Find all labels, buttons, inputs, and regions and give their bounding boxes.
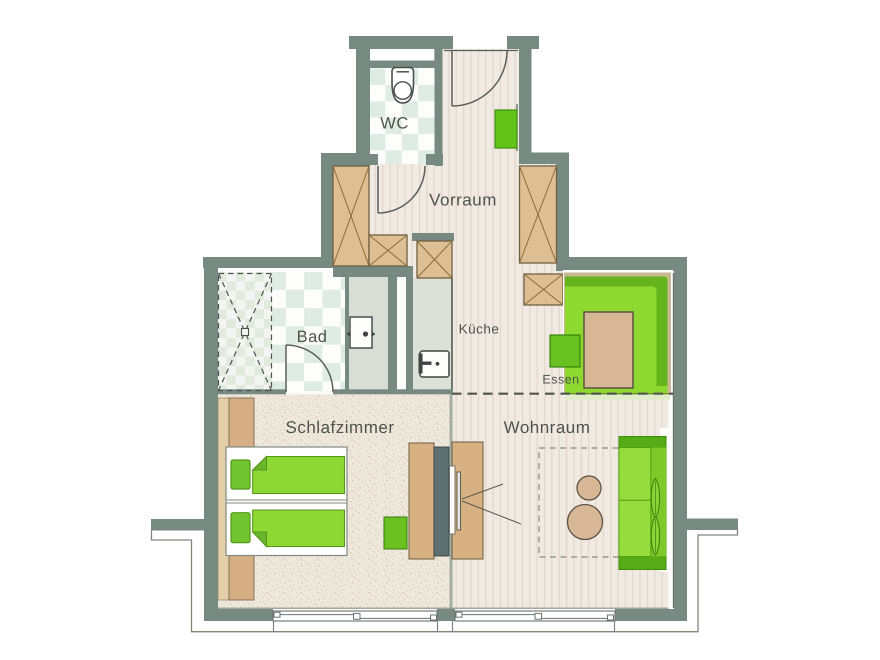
svg-text:Bad: Bad bbox=[297, 328, 328, 346]
svg-text:Schlafzimmer: Schlafzimmer bbox=[286, 418, 395, 437]
svg-text:WC: WC bbox=[380, 115, 409, 133]
svg-text:Küche: Küche bbox=[459, 322, 500, 337]
svg-text:Wohnraum: Wohnraum bbox=[504, 418, 591, 437]
svg-text:Vorraum: Vorraum bbox=[429, 191, 497, 210]
svg-text:Essen: Essen bbox=[542, 373, 579, 387]
